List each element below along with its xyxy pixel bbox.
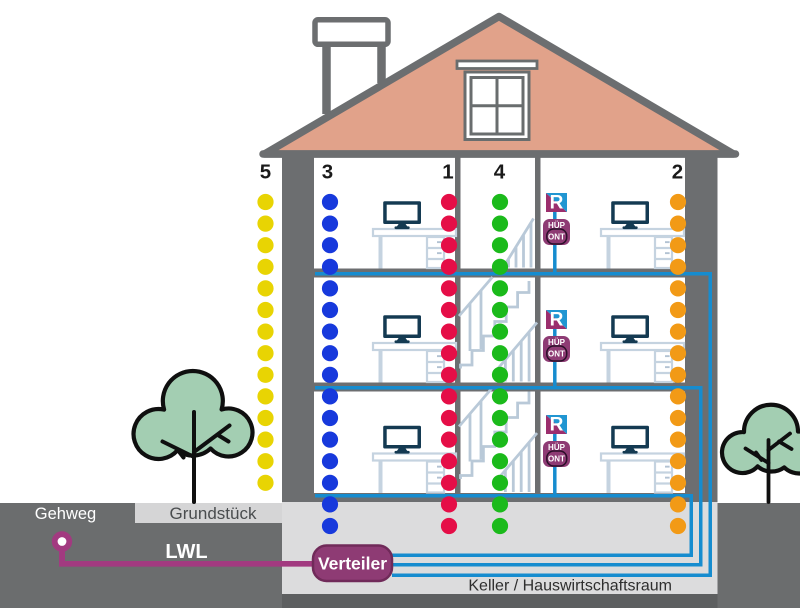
svg-text:3: 3 <box>322 161 333 184</box>
svg-text:5: 5 <box>260 161 271 184</box>
svg-text:Grundstück: Grundstück <box>170 504 257 523</box>
svg-text:4: 4 <box>494 161 506 184</box>
svg-text:1: 1 <box>442 161 453 184</box>
svg-text:Gehweg: Gehweg <box>35 505 96 523</box>
svg-text:Keller / Hauswirtschaftsraum: Keller / Hauswirtschaftsraum <box>468 578 672 595</box>
svg-text:LWL: LWL <box>165 541 207 563</box>
svg-text:2: 2 <box>672 161 683 184</box>
svg-text:Verteiler: Verteiler <box>318 554 387 574</box>
